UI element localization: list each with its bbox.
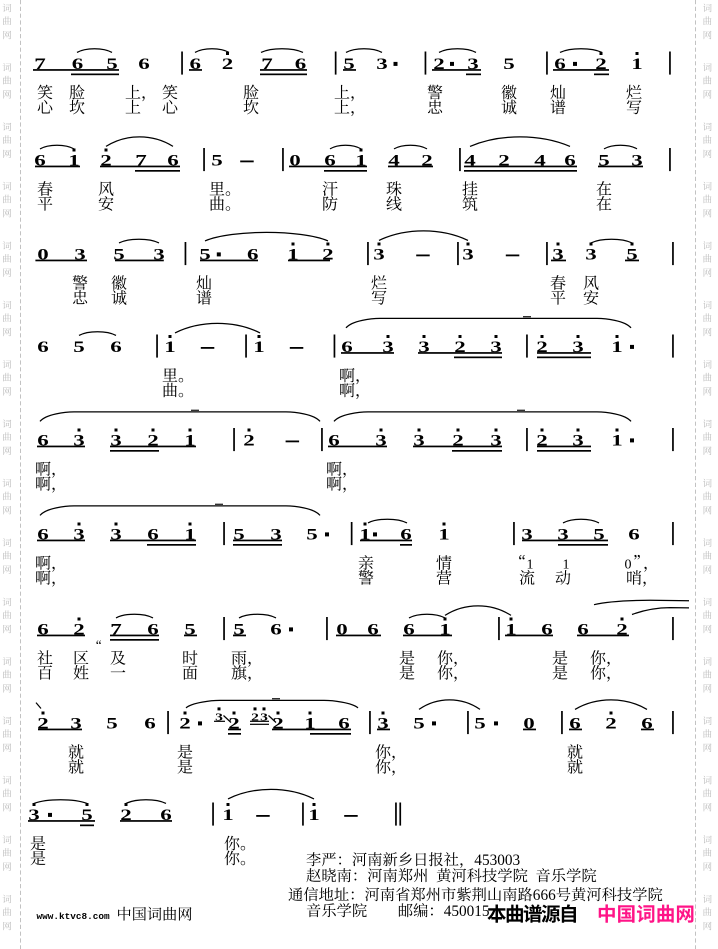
svg-text:5: 5 bbox=[73, 338, 85, 356]
svg-text:2: 2 bbox=[222, 55, 234, 73]
svg-text:5: 5 bbox=[106, 715, 118, 733]
svg-text:453003: 453003 bbox=[474, 852, 520, 869]
svg-text:6: 6 bbox=[270, 621, 282, 639]
svg-text:6: 6 bbox=[144, 715, 156, 733]
svg-text:6: 6 bbox=[37, 338, 49, 356]
svg-text:666: 666 bbox=[533, 887, 556, 904]
svg-text:1: 1 bbox=[253, 338, 264, 356]
svg-text:6: 6 bbox=[628, 526, 640, 544]
svg-text:3: 3 bbox=[376, 55, 388, 73]
svg-text:3: 3 bbox=[462, 246, 474, 264]
svg-text:5: 5 bbox=[413, 715, 425, 733]
svg-text:5: 5 bbox=[306, 526, 318, 544]
svg-text:1: 1 bbox=[222, 806, 233, 824]
svg-text:5: 5 bbox=[211, 152, 223, 170]
svg-text:1: 1 bbox=[611, 432, 622, 450]
svg-text:1: 1 bbox=[527, 558, 534, 573]
svg-text:0: 0 bbox=[625, 558, 632, 573]
svg-text:1: 1 bbox=[611, 338, 622, 356]
svg-text:450015: 450015 bbox=[444, 903, 490, 920]
svg-text:3: 3 bbox=[585, 246, 597, 264]
svg-text:1: 1 bbox=[631, 55, 642, 73]
svg-text:1: 1 bbox=[308, 806, 319, 824]
svg-text:6: 6 bbox=[138, 55, 150, 73]
svg-text:5: 5 bbox=[474, 715, 486, 733]
svg-text:www.ktvc8.com: www.ktvc8.com bbox=[37, 911, 111, 922]
svg-text:1: 1 bbox=[438, 526, 449, 544]
svg-text:2: 2 bbox=[243, 432, 255, 450]
svg-text:6: 6 bbox=[110, 338, 122, 356]
svg-text:2: 2 bbox=[179, 715, 191, 733]
svg-text:2: 2 bbox=[605, 715, 617, 733]
svg-text:5: 5 bbox=[503, 55, 515, 73]
svg-text:1: 1 bbox=[164, 338, 175, 356]
svg-text:3: 3 bbox=[373, 246, 385, 264]
